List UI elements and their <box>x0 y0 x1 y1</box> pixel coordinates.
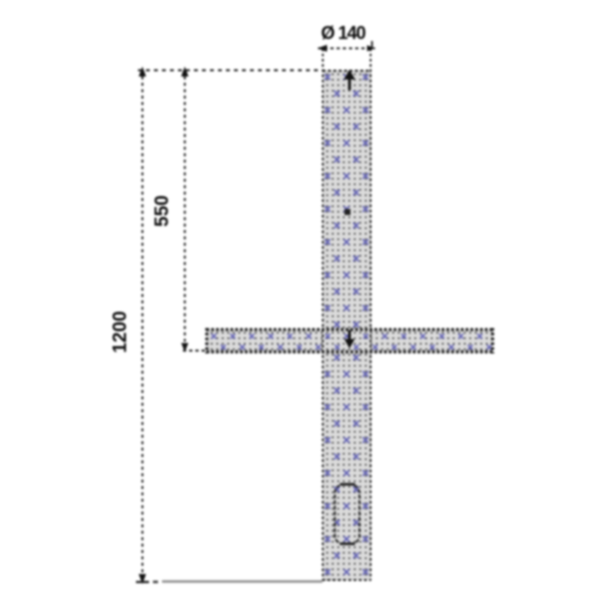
svg-text:550: 550 <box>152 195 173 227</box>
svg-text:1200: 1200 <box>110 311 131 353</box>
svg-text:Ø 140: Ø 140 <box>321 23 366 43</box>
